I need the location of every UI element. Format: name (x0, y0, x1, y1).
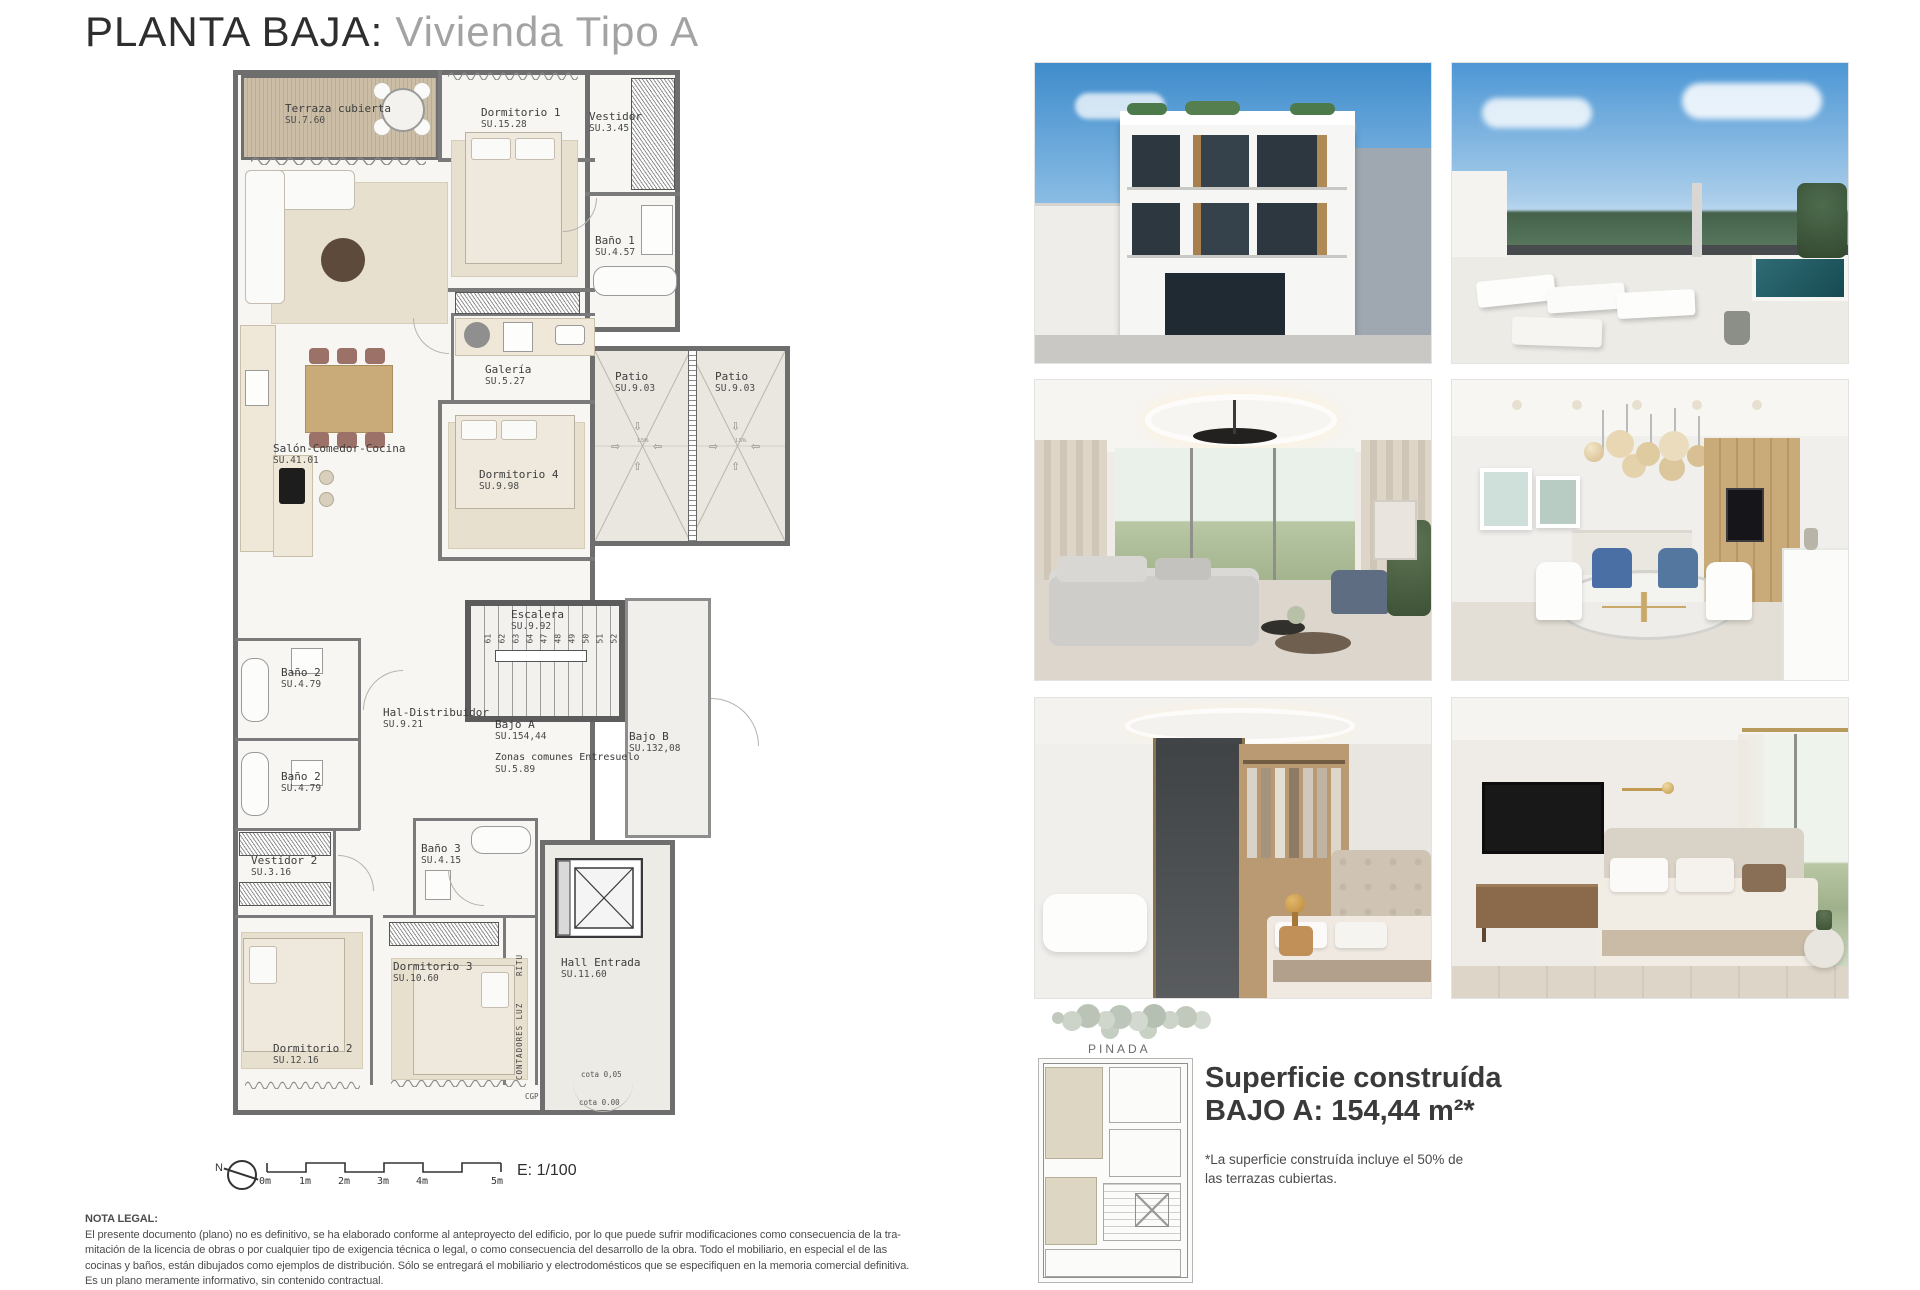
pillow (481, 972, 509, 1008)
slope-arrow: ⇧ (731, 462, 740, 473)
wall (370, 915, 373, 1085)
pinada-label: PINADA (1088, 1042, 1151, 1056)
room-label-vestidor-2: Vestidor 2SU.3.16 (251, 854, 317, 879)
room-label-hal-distribuidor: Hal-DistribuidorSU.9.21 (383, 706, 489, 731)
chair (309, 348, 329, 364)
patio-divider-wall (688, 351, 697, 541)
slope-arrow: ⇧ (633, 462, 642, 473)
plan-common-zone (625, 598, 711, 838)
pillow (461, 420, 497, 440)
washer (503, 322, 533, 352)
pillow (249, 946, 277, 984)
legal-header: NOTA LEGAL: (85, 1212, 1005, 1228)
bano2a-tub (241, 658, 269, 722)
elevator (555, 858, 643, 938)
tick-5m: 5m (491, 1176, 503, 1187)
dining-table (305, 365, 393, 433)
wall (235, 915, 370, 918)
bano2b-tub (241, 752, 269, 816)
key-plan-thumbnail (1038, 1058, 1193, 1283)
room-label-bajo-b: Bajo BSU.132,08 (629, 730, 680, 755)
wall (451, 313, 454, 403)
cooktop (279, 468, 305, 504)
tick-4m: 4m (416, 1176, 428, 1187)
wall (333, 828, 336, 918)
wall (358, 638, 361, 830)
page-title-main: PLANTA BAJA: (85, 8, 383, 55)
galeria-bin (464, 322, 490, 348)
dorm3-wardrobe (389, 922, 499, 946)
photo-bedroom-window (1452, 698, 1848, 998)
legal-line-3: cocinas y baños, están dibujados como ej… (85, 1259, 1005, 1275)
room-label-vestidor: VestidorSU.3.45 (589, 110, 642, 135)
photo-dining-kitchen (1452, 380, 1848, 680)
chair (337, 348, 357, 364)
page-title-sub: Vivienda Tipo A (395, 8, 699, 55)
tick-0m: 0m (259, 1176, 271, 1187)
bano1-vanity (641, 205, 673, 255)
window-salon (251, 156, 426, 165)
surface-summary: Superficie construída BAJO A: 154,44 m²*… (1205, 1062, 1625, 1188)
surface-note-line1: *La superficie construída incluye el 50%… (1205, 1151, 1625, 1170)
legal-line-4: Es un plano meramente informativo, sin c… (85, 1274, 1005, 1290)
wall (438, 400, 442, 560)
pillow (515, 138, 555, 160)
room-label-dormitorio-1: Dormitorio 1SU.15.28 (481, 106, 560, 131)
north-arrow-icon (227, 1160, 257, 1190)
page-title: PLANTA BAJA:Vivienda Tipo A (85, 8, 699, 56)
kitchen-sink (245, 370, 269, 406)
slope-arrow: ⇩ (633, 422, 642, 433)
slope-arrow: ⇨ (611, 442, 620, 453)
room-label-dormitorio-3: Dormitorio 3SU.10.60 (393, 960, 472, 985)
floor-plan: ⇩ ⇨ ⇦ ⇧ ⇩ ⇨ ⇦ ⇧ 1.5% 1.5% 61626364474849… (233, 70, 793, 1120)
scale-ratio: E: 1/100 (517, 1162, 577, 1180)
wall (585, 192, 680, 196)
window-dorm1 (448, 71, 578, 80)
legal-line-1: El presente documento (plano) no es defi… (85, 1228, 1005, 1244)
room-label-bano-3: Baño 3SU.4.15 (421, 842, 461, 867)
kitchen-counter (240, 325, 276, 552)
wall (438, 70, 442, 162)
surface-note-line2: las terrazas cubiertas. (1205, 1170, 1625, 1189)
wall (413, 818, 416, 918)
ba3-fix (425, 870, 451, 900)
stair-landing (495, 650, 587, 662)
door-arc-bajo-b (711, 698, 759, 746)
room-label-dormitorio-4: Dormitorio 4SU.9.98 (479, 468, 558, 493)
wall (235, 738, 360, 741)
room-label-bano-1: Baño 1SU.4.57 (595, 234, 635, 259)
wall (413, 818, 538, 821)
legal-line-2: mitación de la licencia de obras o por c… (85, 1243, 1005, 1259)
room-label-zonas-comunes: Zonas comunes EntresueloSU.5.89 (495, 752, 640, 775)
room-label-hall-entrada: Hall EntradaSU.11.60 (561, 956, 640, 981)
room-label-galeria: GaleríaSU.5.27 (485, 363, 531, 388)
room-label-bano-2b: Baño 2SU.4.79 (281, 770, 321, 795)
slope-arrow: ⇦ (751, 442, 760, 453)
room-label-bajo-a: Bajo ASU.154,44 (495, 718, 546, 743)
dorm1-wardrobe (455, 292, 580, 314)
photo-roof-terrace (1452, 63, 1848, 363)
stool (319, 470, 334, 485)
wall (235, 828, 360, 831)
coffee-table (321, 238, 365, 282)
slope-arrow: ⇦ (653, 442, 662, 453)
pillow (501, 420, 537, 440)
room-label-salon: Salón-Comedor-CocinaSU.41.01 (273, 442, 405, 467)
sofa-chaise (245, 170, 285, 304)
galeria-sink (555, 325, 585, 345)
chair (365, 348, 385, 364)
tick-2m: 2m (338, 1176, 350, 1187)
photo-exterior-facade (1035, 63, 1431, 363)
ritu-label: RITU (515, 928, 524, 976)
wall (535, 818, 538, 1085)
room-label-patio-1: PatioSU.9.03 (615, 370, 655, 395)
room-label-bano-2a: Baño 2SU.4.79 (281, 666, 321, 691)
stool (319, 492, 334, 507)
cgp-label: CGP (525, 1092, 539, 1101)
wall (438, 557, 595, 561)
wall (383, 915, 538, 918)
room-label-terraza: Terraza cubiertaSU.7.60 (285, 102, 391, 127)
cota-bottom: cota 0.00 (579, 1098, 620, 1107)
cota-top: cota 0,05 (581, 1070, 622, 1079)
vestidor2-wardrobe (239, 832, 331, 856)
legal-note: NOTA LEGAL: El presente documento (plano… (85, 1212, 1005, 1290)
pinada-foliage-graphic (1052, 1012, 1064, 1024)
wall (235, 638, 360, 641)
surface-title-line1: Superficie construída (1205, 1062, 1625, 1095)
surface-title-line2: BAJO A: 154,44 m²* (1205, 1095, 1625, 1128)
room-label-dormitorio-2: Dormitorio 2SU.12.16 (273, 1042, 352, 1067)
bano3-tub (471, 826, 531, 854)
slope-arrow: ⇨ (709, 442, 718, 453)
tick-1m: 1m (299, 1176, 311, 1187)
north-label: N (215, 1162, 223, 1174)
room-label-escalera: EscaleraSU.9.92 (511, 608, 564, 633)
slope-label: 1.5% (637, 438, 648, 444)
photo-bedroom-dressing (1035, 698, 1431, 998)
contadores-label: CONTADORES LUZ (515, 985, 524, 1080)
photo-living-room (1035, 380, 1431, 680)
slope-arrow: ⇩ (731, 422, 740, 433)
slope-label: 1.5% (735, 438, 746, 444)
vestidor2-wardrobe (239, 882, 331, 906)
tick-3m: 3m (377, 1176, 389, 1187)
bano1-tub (593, 266, 677, 296)
room-label-patio-2: PatioSU.9.03 (715, 370, 755, 395)
scale-bar-steps (265, 1160, 503, 1176)
scale-bar: N 0m 1m 2m 3m 4m 5m E: 1/100 (215, 1158, 655, 1200)
wall (438, 400, 595, 404)
pillow (471, 138, 511, 160)
window-dorm2 (245, 1080, 360, 1089)
